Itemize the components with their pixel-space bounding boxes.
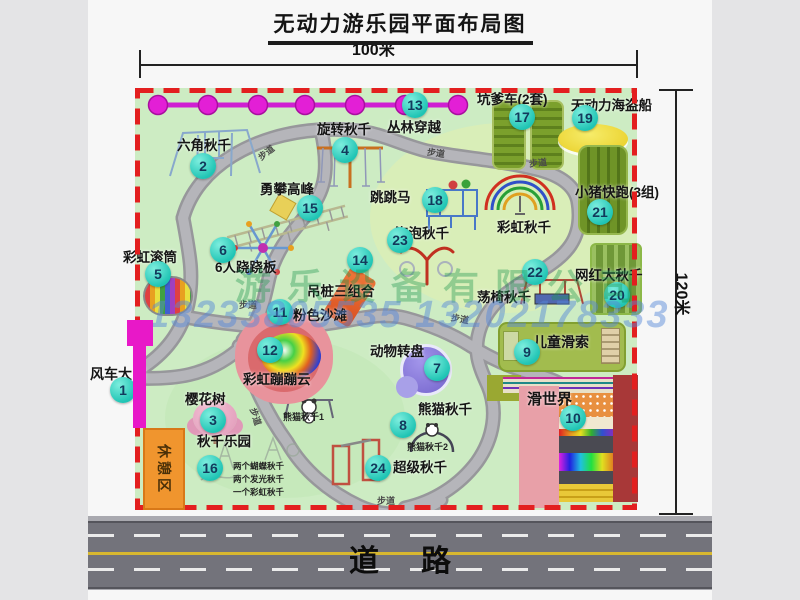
- marker-23: 23: [387, 227, 413, 253]
- label-rotating-swing: 旋转秋千: [317, 118, 371, 138]
- marker-2: 2: [190, 153, 216, 179]
- road-label: 道路: [88, 536, 712, 580]
- slide-world-dark-section-2: [559, 471, 613, 484]
- dim-line-top: [140, 64, 638, 66]
- label-super-swing: 超级秋千: [393, 456, 447, 476]
- slide-world-dark-section-1: [559, 436, 613, 453]
- swing-paradise-note-3: 一个彩虹秋千: [233, 486, 284, 498]
- label-jumping-horse: 跳跳马: [370, 186, 411, 206]
- slide-world-yellow-waves: [559, 484, 613, 502]
- walkway-label-6: 步道: [377, 494, 395, 507]
- marker-18: 18: [422, 187, 448, 213]
- marker-6: 6: [210, 237, 236, 263]
- marker-7: 7: [424, 355, 450, 381]
- label-hexagon-swing: 六角秋千: [177, 134, 231, 154]
- dim-label-right: 120米: [671, 273, 695, 316]
- marker-21: 21: [587, 199, 613, 225]
- label-cherry-tree: 樱花树: [185, 388, 226, 408]
- page-title: 无动力游乐园平面布局图: [268, 8, 533, 45]
- label-animal-turntable: 动物转盘: [370, 340, 424, 360]
- marker-16: 16: [197, 455, 223, 481]
- dim-tick-top-right: [636, 50, 638, 78]
- marker-13: 13: [402, 92, 428, 118]
- slide-world-rainbow-slide: [559, 453, 613, 471]
- road-strip: 道路: [88, 516, 712, 590]
- marker-10: 10: [560, 405, 586, 431]
- dim-tick-top-left: [139, 50, 141, 78]
- marker-4: 4: [332, 137, 358, 163]
- rest-area: 休憩区: [143, 428, 185, 510]
- label-panda-swing-1: 熊猫秋千1: [283, 410, 324, 423]
- marker-9: 9: [514, 339, 540, 365]
- label-pit-car: 坑爹车(2套): [477, 88, 548, 108]
- slide-world-red-band: [613, 375, 638, 502]
- marker-24: 24: [365, 455, 391, 481]
- marker-15: 15: [297, 195, 323, 221]
- label-rainbow-bounce-cloud: 彩虹蹦蹦云: [243, 368, 311, 388]
- label-rainbow-swing: 彩虹秋千: [497, 216, 551, 236]
- label-panda-swing-2: 熊猫秋千2: [407, 440, 448, 453]
- marker-8: 8: [390, 412, 416, 438]
- watermark-phone: 13233805535 13202178333: [148, 294, 670, 337]
- dim-tick-right-top: [659, 89, 693, 91]
- windmill-gate-icon: [127, 320, 153, 346]
- marker-5: 5: [145, 261, 171, 287]
- label-swing-paradise: 秋千乐园: [197, 430, 251, 450]
- marker-12: 12: [257, 337, 283, 363]
- label-jungle-crossing: 丛林穿越: [387, 116, 441, 136]
- rest-area-label: 休憩区: [154, 444, 174, 495]
- walkway-label-2: 步道: [426, 145, 446, 160]
- label-piggy-run: 小猪快跑(3组): [575, 181, 659, 201]
- label-panda-swing: 熊猫秋千: [418, 398, 472, 418]
- screenshot-stage: 无动力游乐园平面布局图 100米 120米 游乐设备有限公司 132338055…: [0, 0, 800, 600]
- walkway-label-3: 步道: [528, 155, 547, 170]
- title-wrap: 无动力游乐园平面布局图: [0, 8, 800, 45]
- marker-3: 3: [200, 407, 226, 433]
- swing-paradise-note-2: 两个发光秋千: [233, 473, 284, 485]
- animal-turntable-small-icon: [396, 376, 418, 398]
- swing-paradise-note-1: 两个蝴蝶秋千: [233, 460, 284, 472]
- windmill-gate-pole-icon: [133, 346, 146, 428]
- label-slide-world: 滑世界: [527, 388, 572, 409]
- marker-17: 17: [509, 104, 535, 130]
- slide-world-rainbow-strip: [559, 429, 613, 436]
- dim-tick-right-bottom: [659, 513, 693, 515]
- marker-19: 19: [572, 105, 598, 131]
